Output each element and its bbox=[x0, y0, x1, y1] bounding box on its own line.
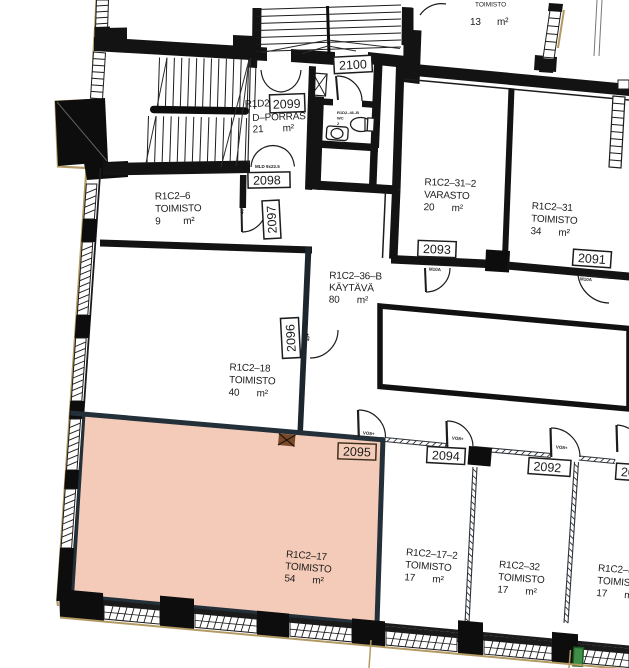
svg-text:2099: 2099 bbox=[273, 97, 301, 112]
svg-text:2093: 2093 bbox=[423, 242, 451, 257]
svg-text:17: 17 bbox=[596, 588, 608, 600]
svg-text:KÄYTÄVÄ: KÄYTÄVÄ bbox=[329, 282, 374, 295]
svg-text:m²: m² bbox=[183, 216, 195, 227]
svg-text:2098: 2098 bbox=[253, 173, 281, 187]
svg-text:m²: m² bbox=[282, 123, 295, 134]
svg-text:2100: 2100 bbox=[339, 57, 368, 72]
svg-text:m²: m² bbox=[432, 574, 445, 586]
svg-text:R1C2–31–2: R1C2–31–2 bbox=[424, 177, 477, 190]
svg-text:TOIMISTO: TOIMISTO bbox=[229, 375, 276, 388]
svg-text:WC: WC bbox=[337, 116, 344, 121]
svg-text:34: 34 bbox=[530, 226, 542, 238]
svg-text:2096: 2096 bbox=[283, 324, 298, 353]
svg-text:TOIMISTO: TOIMISTO bbox=[475, 2, 506, 9]
svg-text:m²: m² bbox=[451, 203, 464, 214]
svg-text:D–PORRAS: D–PORRAS bbox=[252, 111, 306, 124]
svg-text:TOIMISTO: TOIMISTO bbox=[155, 203, 202, 215]
svg-text:20: 20 bbox=[620, 465, 629, 480]
svg-text:9: 9 bbox=[155, 216, 161, 227]
svg-text:2091: 2091 bbox=[578, 251, 607, 267]
svg-text:m²: m² bbox=[558, 227, 571, 239]
svg-text:R1C2–36–B: R1C2–36–B bbox=[329, 271, 382, 283]
svg-text:VO8+: VO8+ bbox=[452, 435, 464, 441]
svg-text:m²: m² bbox=[497, 17, 509, 28]
svg-text:m²: m² bbox=[312, 575, 325, 587]
svg-text:m²: m² bbox=[525, 586, 538, 598]
svg-text:2094: 2094 bbox=[432, 448, 461, 463]
svg-text:R1D2–46–B: R1D2–46–B bbox=[337, 110, 359, 115]
svg-text:20: 20 bbox=[423, 202, 435, 213]
svg-text:VARASTO: VARASTO bbox=[424, 190, 470, 203]
svg-text:VO8+: VO8+ bbox=[556, 444, 568, 450]
svg-text:54: 54 bbox=[284, 573, 296, 585]
svg-text:M10A: M10A bbox=[580, 276, 593, 282]
svg-text:m²: m² bbox=[256, 388, 269, 399]
svg-text:R1C2–6: R1C2–6 bbox=[155, 191, 191, 203]
svg-text:2097: 2097 bbox=[264, 205, 279, 234]
svg-text:13: 13 bbox=[470, 17, 481, 28]
svg-text:m: m bbox=[624, 590, 629, 602]
svg-text:R1C2–18: R1C2–18 bbox=[229, 362, 271, 374]
svg-text:80: 80 bbox=[329, 295, 341, 306]
svg-text:40: 40 bbox=[228, 387, 240, 398]
svg-text:m²: m² bbox=[357, 295, 369, 306]
svg-text:40+: 40+ bbox=[306, 333, 311, 341]
svg-text:17: 17 bbox=[404, 572, 416, 584]
svg-text:M10A: M10A bbox=[429, 267, 442, 273]
svg-text:VO8+: VO8+ bbox=[363, 430, 375, 436]
svg-text:2095: 2095 bbox=[343, 445, 371, 460]
svg-text:MLD 9x22.5: MLD 9x22.5 bbox=[255, 164, 280, 169]
svg-text:R1C2–31: R1C2–31 bbox=[531, 201, 573, 214]
svg-text:40+: 40+ bbox=[240, 206, 245, 214]
svg-text:2092: 2092 bbox=[533, 459, 562, 475]
svg-text:21: 21 bbox=[252, 124, 264, 135]
svg-text:17: 17 bbox=[497, 584, 509, 596]
svg-text:R1D2: R1D2 bbox=[245, 98, 271, 110]
